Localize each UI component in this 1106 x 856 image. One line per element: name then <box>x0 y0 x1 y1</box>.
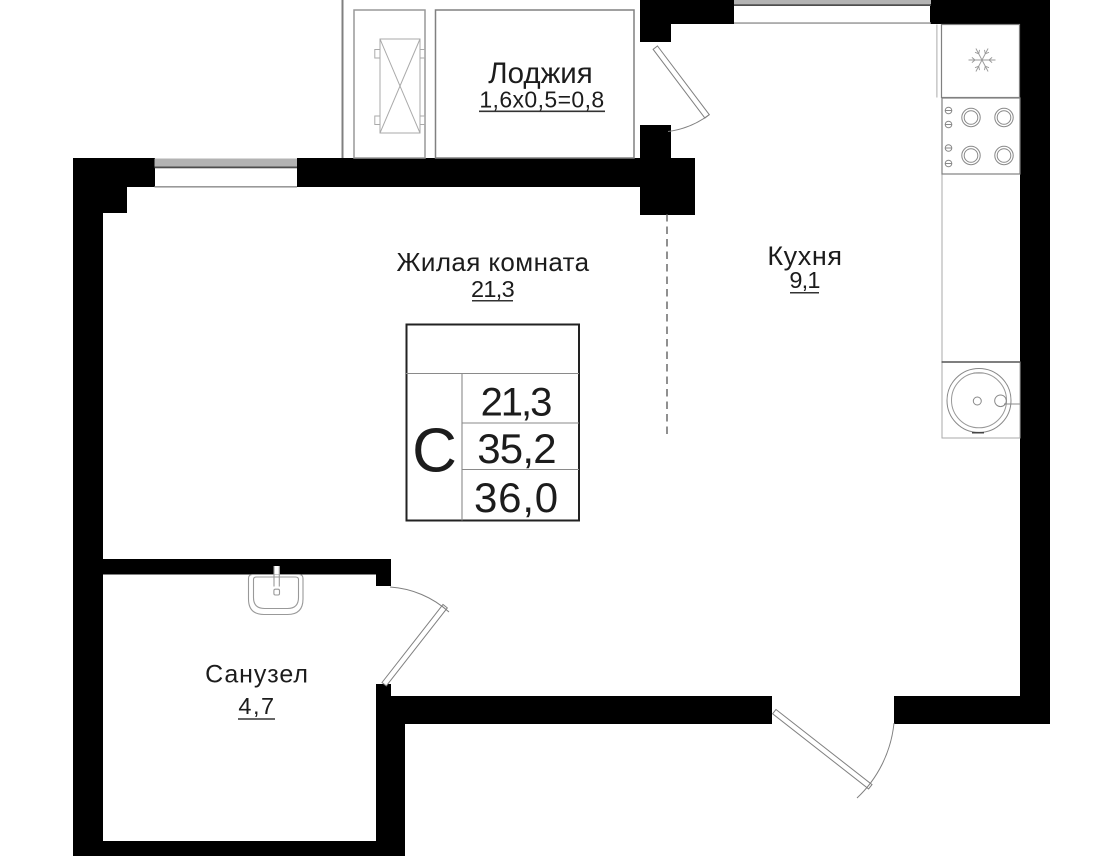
svg-text:Лоджия: Лоджия <box>488 57 593 90</box>
svg-text:36,0: 36,0 <box>474 474 559 521</box>
svg-text:С: С <box>412 417 457 486</box>
svg-text:35,2: 35,2 <box>477 425 556 472</box>
svg-text:1,6x0,5=0,8: 1,6x0,5=0,8 <box>479 87 604 113</box>
svg-text:21,3: 21,3 <box>481 381 552 425</box>
svg-text:9,1: 9,1 <box>789 267 819 293</box>
svg-text:Жилая комната: Жилая комната <box>397 247 590 277</box>
svg-text:4,7: 4,7 <box>238 693 275 719</box>
svg-text:21,3: 21,3 <box>471 276 515 302</box>
svg-text:Санузел: Санузел <box>205 661 309 689</box>
